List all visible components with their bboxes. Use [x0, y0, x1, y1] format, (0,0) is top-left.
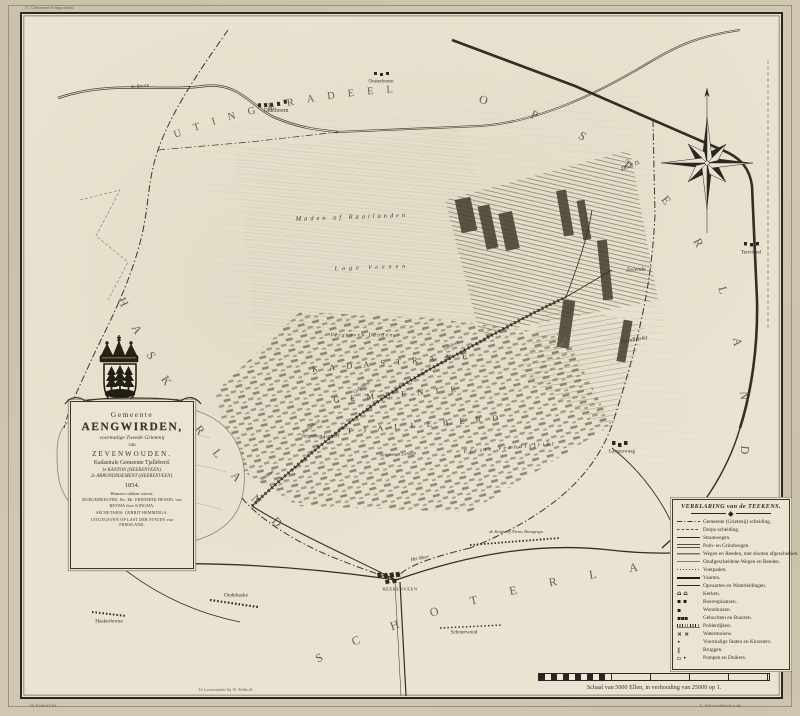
cartouche-kadastrale: Kadastrale Gemeente Tjalleberd. [74, 460, 190, 466]
map-sheet: UTINGERADEEL OPSTERLAND SCHOTERLAND HASK… [0, 0, 800, 716]
legend-item: Gemeente (Grietenij) scheiding. [677, 518, 785, 526]
cartouche-subtitle: voormalige Tweede Grietenij [74, 435, 190, 441]
legend-item: Dorps-scheiding. [677, 526, 785, 534]
scale-bar-segments [612, 673, 770, 681]
cartouche-issue-note: UITGEGEVEN OP LAST DER STATEN van FRIESL… [78, 517, 186, 528]
label-knijpe: de Knijpe of Nieuw Brongerga [489, 530, 543, 534]
bridge-icon [677, 647, 700, 654]
polder-dike-icon [677, 623, 700, 630]
open-road-icon [677, 558, 700, 565]
legend-item: Straatwegen. [677, 534, 785, 542]
church-icon [677, 590, 700, 597]
legend-item: Bruggen. [677, 646, 785, 654]
legend-item: Boerenplaatsen. [677, 598, 785, 606]
region-name-east: OPSTERLAND [477, 92, 752, 500]
legend-item: Polderdijken. [677, 622, 785, 630]
scale-bar-checkered [538, 673, 612, 681]
legend-item: Pompen en Duikers. [677, 654, 785, 662]
diamond-ornament-icon [729, 511, 734, 516]
gravel-road-icon [677, 542, 700, 549]
legend-panel: VERKLARING van de TEEKENS. Gemeente (Gri… [672, 499, 790, 670]
cartouche-note: Wanneer aldaar waren: [74, 491, 190, 496]
label-heerenveen: HEERENVEEN [382, 588, 417, 593]
legend-item: Kerken. [677, 590, 785, 598]
cartouche-kanton: 1e KANTON (HEERENVEEN). [74, 468, 190, 473]
boundary-line-icon [677, 518, 700, 525]
label-schoterwoud: Schoterwoud [451, 631, 477, 636]
scale-caption: Schaal van 5000 Ellen, in verhouding van… [587, 685, 722, 691]
cartouche-zevenwouden: ZEVENWOUDEN. [74, 450, 190, 458]
village-boundary-icon [677, 526, 700, 533]
legend-ornament [691, 512, 771, 516]
cartouche-arrondissement: 2e ARRONDISSEMENT (HEERENVEEN). [74, 474, 190, 479]
legend-item: Onafgescheidene Wegen en Reeden. [677, 558, 785, 566]
legend-item: Opvaarten en Waterleidingen. [677, 582, 785, 590]
label-langezwaag: Langezwaag [609, 449, 635, 454]
legend-item: Voetpaden. [677, 566, 785, 574]
legend-item: Wegen en Reeden, met slooten afgescheide… [677, 550, 785, 558]
title-cartouche: Gemeente AENGWIRDEN, voormalige Tweede G… [70, 401, 194, 569]
scale-bar [538, 673, 770, 679]
legend-item: Vaarten. [677, 574, 785, 582]
legend-item: Gehuchten en Buurten. [677, 614, 785, 622]
ornament-line [691, 513, 726, 514]
waterway-icon [677, 582, 700, 589]
credit-right: L. Schweickhardt sculp. [700, 704, 742, 708]
credit-left: W. Eekhoff del. [30, 704, 58, 708]
ditched-road-icon [677, 550, 700, 557]
house-icon [677, 607, 700, 614]
plate-note: 17. Gemeente Aengwirden. [24, 6, 74, 11]
cartouche-burgemeester: BURGEMEESTER, Jhr. Mr. FREDERIK HESSEL v… [78, 497, 186, 508]
legend-title: VERKLARING van de TEEKENS. [677, 503, 785, 510]
cartouche-van: van [74, 443, 190, 448]
paved-road-icon [677, 534, 700, 541]
farmstead-icon [677, 598, 700, 605]
region-name-north: UTINGERADEEL [172, 83, 406, 140]
label-oldeboorn: Oldeboorn [264, 109, 289, 115]
legend-item: Voormalige Staten en Kloosters. [677, 638, 785, 646]
windmill-icon [677, 631, 700, 638]
legend-item: Watermolens. [677, 630, 785, 638]
cartouche-year: 1854. [74, 482, 190, 489]
pump-culvert-icon [677, 655, 700, 662]
label-vergraven-landen: Vergraven Landen [330, 333, 393, 338]
canal-icon [677, 574, 700, 581]
label-oudehaske: Oudehaske [224, 593, 248, 598]
cartouche-secretaris: SECRETARIS: GERRIT HEMMINGA. [78, 510, 186, 516]
legend-item: Puin- en Grindwegen. [677, 542, 785, 550]
label-haskerhorne: Haskerhorne [95, 619, 123, 624]
label-vergraven-landen: Vergraven Landen [301, 434, 339, 439]
cartouche-title: AENGWIRDEN, [74, 421, 190, 433]
label-terwispel: Terwispel [741, 250, 761, 255]
hamlet-icon [677, 615, 700, 622]
cartouche-scroll-ornament [63, 395, 203, 405]
publisher-note: Te Leeuwarden bij W. Eekhoff. [199, 688, 254, 692]
legend-item: Woonhuizen. [677, 606, 785, 614]
ornament-line [736, 513, 771, 514]
former-estate-icon [677, 639, 700, 646]
label-oosterboorn: Oosterboorn [369, 80, 394, 85]
footpath-icon [677, 566, 700, 573]
label-zevende-district: Zevende [626, 268, 646, 275]
cartouche-pre-title: Gemeente [74, 410, 190, 419]
